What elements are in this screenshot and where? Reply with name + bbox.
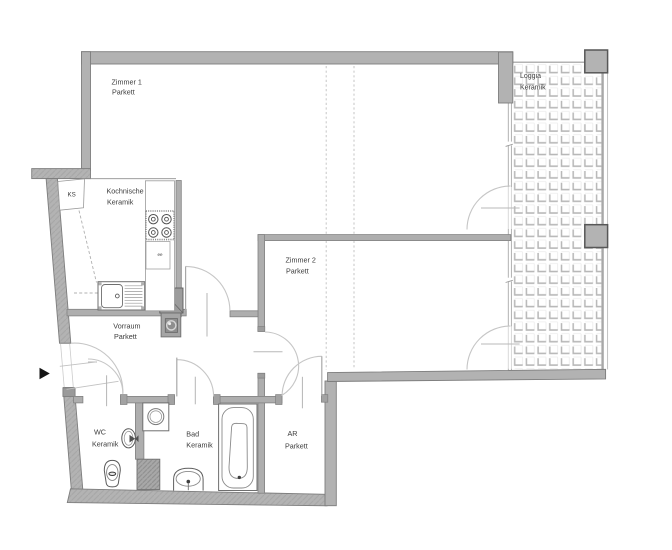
svg-text:Parkett: Parkett — [112, 88, 135, 97]
svg-text:AR: AR — [288, 429, 298, 438]
svg-text:ee: ee — [158, 252, 164, 257]
svg-text:KS: KS — [68, 192, 76, 199]
svg-text:Bad: Bad — [186, 430, 199, 439]
svg-text:Keramik: Keramik — [92, 440, 119, 449]
svg-text:Parkett: Parkett — [286, 267, 309, 276]
svg-text:WC: WC — [94, 428, 106, 437]
svg-text:Parkett: Parkett — [114, 332, 137, 341]
svg-text:Keramik: Keramik — [107, 198, 134, 207]
svg-text:Loggia: Loggia — [520, 73, 541, 80]
svg-text:Keramik: Keramik — [186, 441, 213, 450]
svg-text:Vorraum: Vorraum — [113, 321, 140, 330]
svg-text:Zimmer 2: Zimmer 2 — [286, 256, 316, 265]
svg-text:Parkett: Parkett — [285, 441, 308, 450]
svg-text:Keramik: Keramik — [520, 85, 546, 92]
svg-text:Zimmer 1: Zimmer 1 — [112, 77, 142, 86]
svg-text:Kochnische: Kochnische — [107, 187, 144, 196]
